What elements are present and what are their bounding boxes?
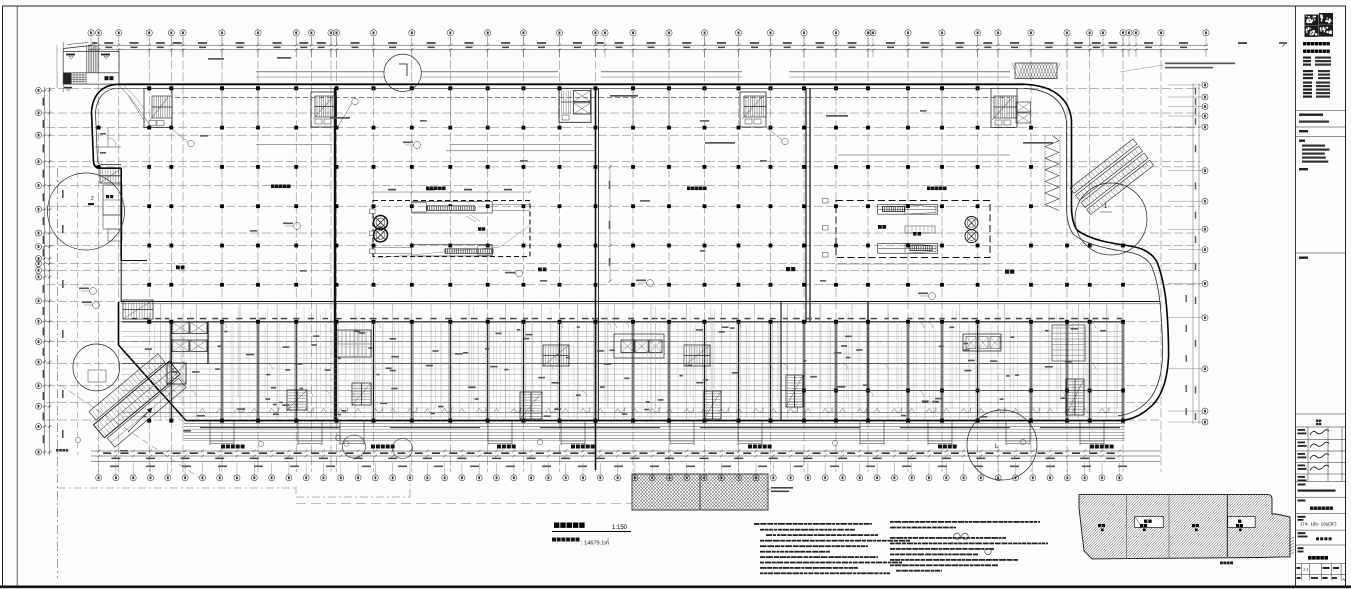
svg-text:2: 2 (91, 196, 94, 202)
svg-text:1-1: 1-1 (1303, 567, 1310, 572)
svg-text:2: 2 (607, 538, 609, 542)
svg-text:: 14679.1m: : 14679.1m (581, 541, 609, 547)
svg-text:1:150: 1:150 (612, 525, 628, 531)
svg-text:J74- 16b- 16s(3F): J74- 16b- 16s(3F) (1300, 522, 1337, 527)
svg-text:A: A (1342, 577, 1345, 582)
